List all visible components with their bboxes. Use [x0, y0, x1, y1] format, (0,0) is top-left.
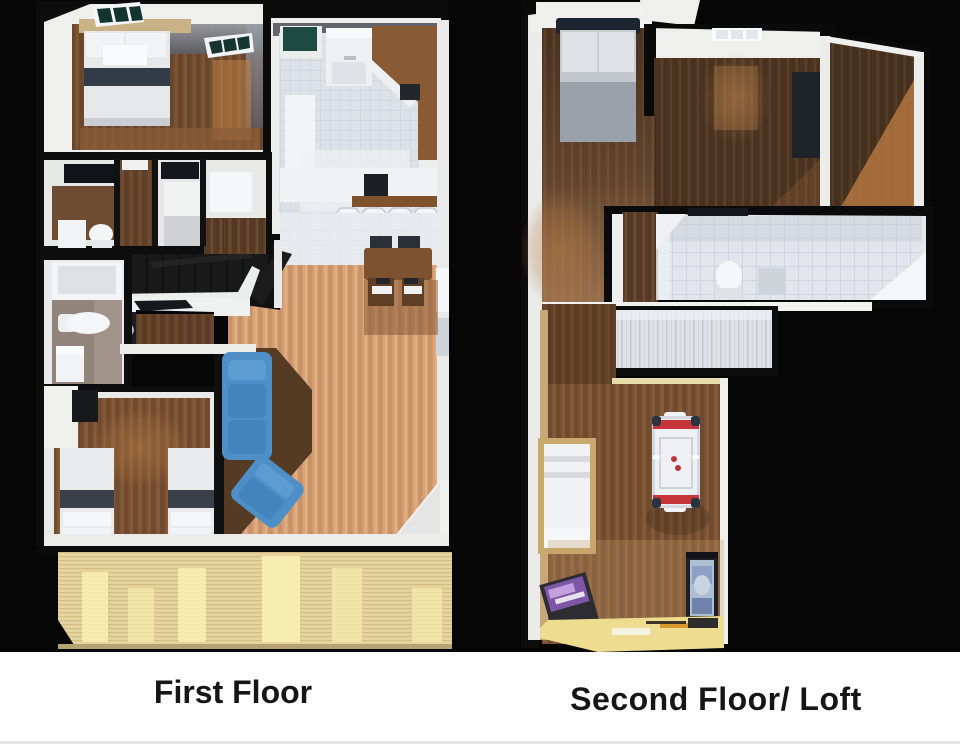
- svg-text:Second Floor/ Loft: Second Floor/ Loft: [570, 681, 862, 717]
- svg-text:First Floor: First Floor: [154, 674, 312, 710]
